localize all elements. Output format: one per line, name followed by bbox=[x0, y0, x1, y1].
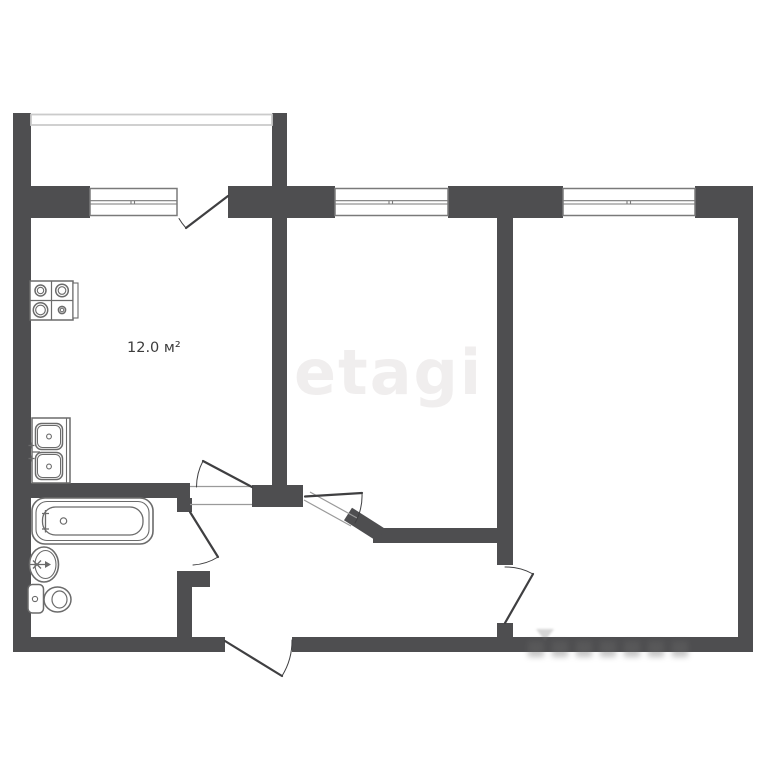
corridor-top-wall bbox=[373, 528, 513, 543]
bathtub-icon bbox=[32, 498, 153, 544]
balcony-door bbox=[179, 196, 228, 228]
bathroom-door bbox=[190, 512, 218, 565]
stove-icon bbox=[30, 281, 78, 320]
bathroom-top-wall bbox=[31, 483, 190, 498]
corridor-diagonal-wall bbox=[344, 508, 385, 542]
fixtures bbox=[28, 281, 153, 613]
balcony-parapet bbox=[31, 115, 272, 126]
kitchen-sink-icon bbox=[29, 418, 71, 483]
top-wall-segment bbox=[228, 186, 335, 218]
kitchen-area-label: 12.0 м² bbox=[127, 340, 181, 356]
kitchen-door-opening bbox=[190, 487, 252, 505]
washbasin-icon bbox=[30, 547, 59, 582]
room-divider-wall-stub bbox=[497, 623, 513, 637]
room-divider-wall bbox=[497, 218, 513, 565]
bottom-wall-left bbox=[13, 637, 225, 652]
bathroom-side-wall-lower bbox=[177, 571, 192, 637]
top-wall-segment bbox=[448, 186, 563, 218]
bedroom-window bbox=[563, 189, 695, 216]
kitchen-door bbox=[197, 461, 253, 487]
top-wall-segment bbox=[31, 186, 90, 218]
right-wall bbox=[738, 186, 753, 650]
entrance-door bbox=[225, 640, 292, 676]
floor-plan-canvas: 12.0 м² etagi bbox=[0, 0, 768, 768]
balcony-kitchen-divider-wall bbox=[272, 113, 287, 485]
kitchen-window bbox=[90, 189, 177, 216]
bathroom-side-wall-upper bbox=[177, 498, 192, 512]
hall-wall-nub bbox=[252, 485, 303, 507]
living-room-window bbox=[335, 189, 448, 216]
watermark-smudge bbox=[528, 641, 696, 657]
windows bbox=[90, 189, 695, 216]
left-wall bbox=[13, 113, 31, 650]
watermark-smudge-arrow bbox=[536, 629, 554, 641]
etagi-watermark: etagi bbox=[294, 336, 483, 409]
toilet-icon bbox=[28, 585, 71, 614]
bedroom-door bbox=[505, 567, 533, 623]
doors bbox=[179, 196, 533, 676]
